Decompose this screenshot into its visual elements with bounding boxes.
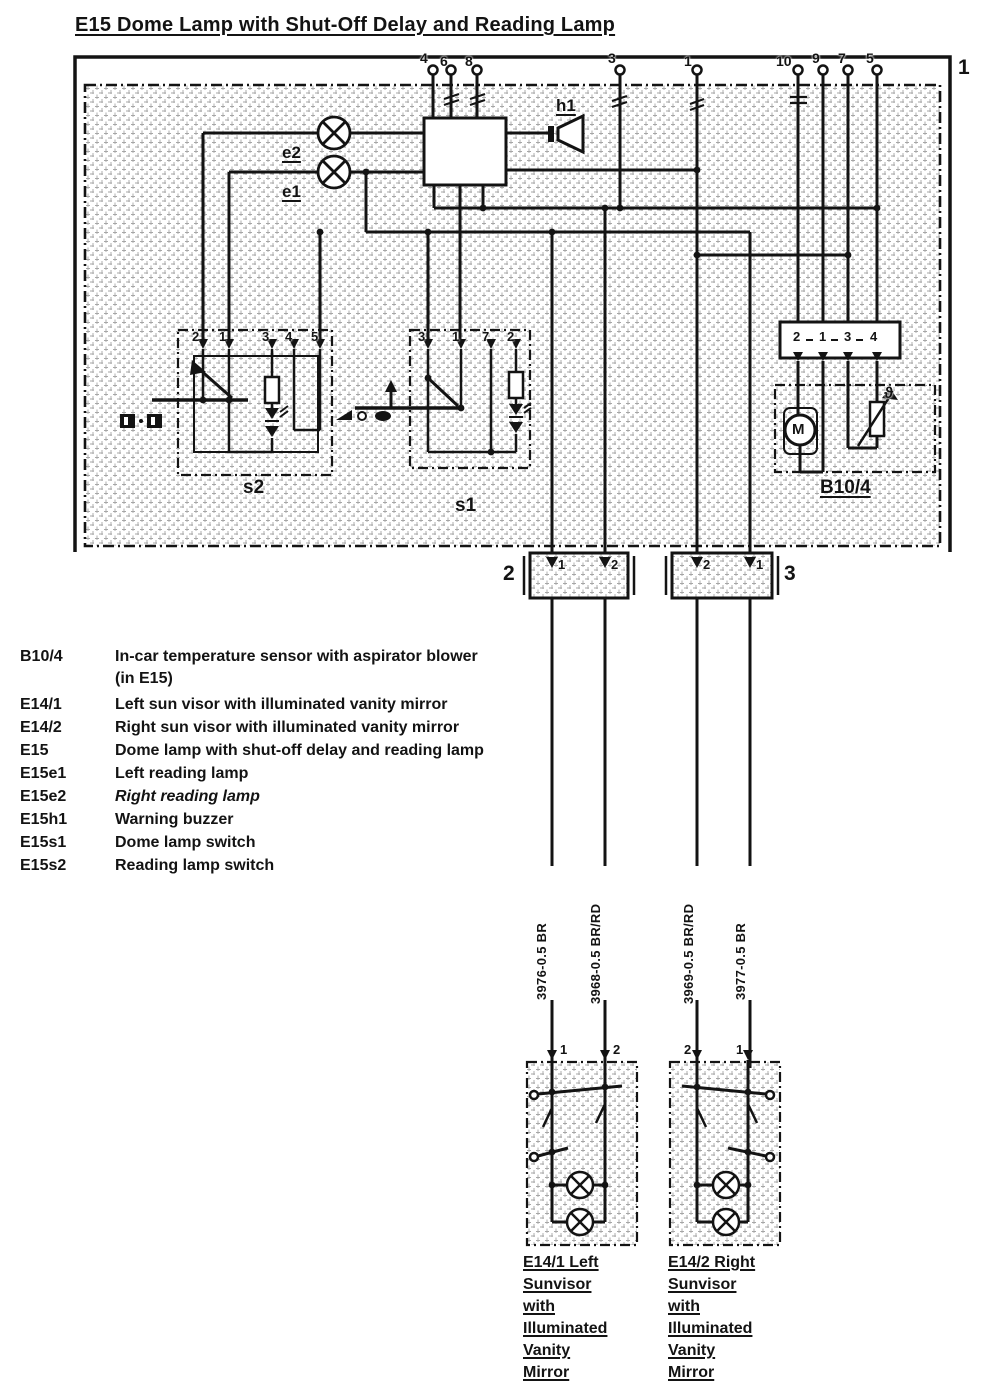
lamp-e2-label: e2 xyxy=(282,143,301,163)
legend-code: E14/1 xyxy=(20,696,62,714)
connector-3-pin: 1 xyxy=(756,557,763,572)
caption-line: Sunvisor xyxy=(523,1274,607,1296)
top-pins xyxy=(429,66,882,75)
s1-pin: 3 xyxy=(418,329,425,344)
top-pin-label: 8 xyxy=(465,53,473,69)
legend-code: E14/2 xyxy=(20,719,62,737)
diagram-title: E15 Dome Lamp with Shut-Off Delay and Re… xyxy=(75,14,615,37)
connector-3-pin: 2 xyxy=(703,557,710,572)
legend-code: E15 xyxy=(20,742,48,760)
sunvisor-right-pin: 1 xyxy=(736,1042,743,1057)
legend-code: E15s2 xyxy=(20,857,66,875)
s2-pin: 5 xyxy=(311,329,318,344)
caption-line: Vanity xyxy=(668,1340,755,1362)
connector-2-label: 2 xyxy=(503,562,515,586)
sunvisor-left xyxy=(527,1050,637,1245)
caption-line: with xyxy=(668,1296,755,1318)
wire-label: 3968-0.5 BR/RD xyxy=(588,854,603,1004)
top-pin-label: 3 xyxy=(608,50,616,66)
lamp-e1-label: e1 xyxy=(282,182,301,202)
legend-code: E15s1 xyxy=(20,834,66,852)
s1-pin: 1 xyxy=(452,329,459,344)
s2-pin: 2 xyxy=(192,329,199,344)
theta-symbol: ϑ xyxy=(884,385,893,403)
caption-line: E14/2 Right xyxy=(668,1252,755,1274)
b104-pin: 4 xyxy=(870,329,877,344)
legend-desc: Right sun visor with illuminated vanity … xyxy=(115,719,459,737)
connector-3-label: 3 xyxy=(784,562,796,586)
legend-code: E15h1 xyxy=(20,811,67,829)
b104-pin: 2 xyxy=(793,329,800,344)
caption-line: Illuminated xyxy=(523,1318,607,1340)
dome-lamp-unit xyxy=(424,118,506,185)
s1-pin: 2 xyxy=(507,329,514,344)
top-pin-label: 5 xyxy=(866,50,874,66)
wire-label: 3969-0.5 BR/RD xyxy=(681,854,696,1004)
caption-line: Vanity xyxy=(523,1340,607,1362)
legend-desc: Left reading lamp xyxy=(115,765,248,783)
legend-desc: Dome lamp switch xyxy=(115,834,255,852)
caption-line: Illuminated xyxy=(668,1318,755,1340)
legend-desc-cont: (in E15) xyxy=(115,670,173,688)
legend-desc: Dome lamp with shut-off delay and readin… xyxy=(115,742,484,760)
sunvisor-right xyxy=(670,1050,780,1245)
switch-s1-label: s1 xyxy=(455,495,476,517)
top-pin-label: 10 xyxy=(776,53,792,69)
b104-pin: 1 xyxy=(819,329,826,344)
sunvisor-right-caption: E14/2 Right Sunvisor with Illuminated Va… xyxy=(668,1252,755,1384)
top-pin-label: 4 xyxy=(420,50,428,66)
b104-label: B10/4 xyxy=(820,477,871,499)
scanned-wiring-diagram-page: E15 Dome Lamp with Shut-Off Delay and Re… xyxy=(0,0,1002,1394)
caption-line: Mirror xyxy=(668,1362,755,1384)
legend-code: E15e1 xyxy=(20,765,66,783)
switch-s2-label: s2 xyxy=(243,477,264,499)
motor-letter: M xyxy=(792,421,805,438)
legend-code: B10/4 xyxy=(20,648,63,666)
s2-pin: 1 xyxy=(219,329,226,344)
s2-pin: 4 xyxy=(285,329,292,344)
sunvisor-right-pin: 2 xyxy=(684,1042,691,1057)
s1-pin: 7 xyxy=(482,329,489,344)
legend-desc: Warning buzzer xyxy=(115,811,234,829)
legend-desc: Left sun visor with illuminated vanity m… xyxy=(115,696,448,714)
sunvisor-left-caption: E14/1 Left Sunvisor with Illuminated Van… xyxy=(523,1252,607,1384)
top-pin-label: 6 xyxy=(440,53,448,69)
top-pin-label: 1 xyxy=(684,53,692,69)
wire-label: 3976-0.5 BR xyxy=(534,850,549,1000)
caption-line: with xyxy=(523,1296,607,1318)
caption-line: E14/1 Left xyxy=(523,1252,607,1274)
buzzer-label: h1 xyxy=(556,96,576,116)
legend-desc: Reading lamp switch xyxy=(115,857,274,875)
caption-line: Sunvisor xyxy=(668,1274,755,1296)
diagram-frame xyxy=(75,57,950,552)
legend-desc: Right reading lamp xyxy=(115,788,260,806)
caption-line: Mirror xyxy=(523,1362,607,1384)
top-pin-label: 9 xyxy=(812,50,820,66)
sunvisor-left-pin: 1 xyxy=(560,1042,567,1057)
s2-pin: 3 xyxy=(262,329,269,344)
b104-pin: 3 xyxy=(844,329,851,344)
top-pin-label: 7 xyxy=(838,50,846,66)
legend-desc: In-car temperature sensor with aspirator… xyxy=(115,648,478,666)
connector-2-pin: 1 xyxy=(558,557,565,572)
sunvisor-left-pin: 2 xyxy=(613,1042,620,1057)
page-number: 1 xyxy=(958,56,970,80)
wire-label: 3977-0.5 BR xyxy=(733,850,748,1000)
legend-code: E15e2 xyxy=(20,788,66,806)
connector-2-pin: 2 xyxy=(611,557,618,572)
